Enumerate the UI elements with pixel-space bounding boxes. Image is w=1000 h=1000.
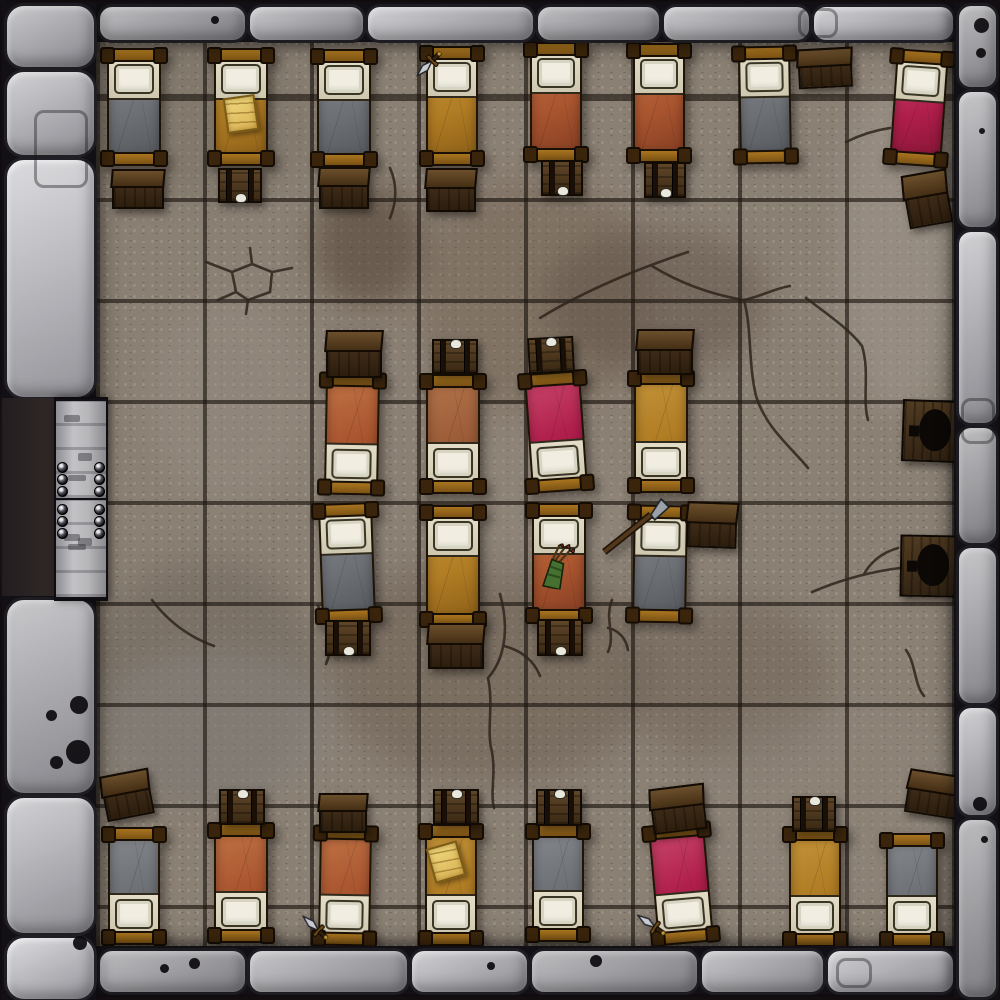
door-plank-mark	[78, 453, 92, 461]
bed-bot-8[interactable]	[883, 833, 941, 947]
chest-mb2[interactable]	[428, 623, 484, 669]
crate-lid	[424, 168, 478, 189]
bed-top-7[interactable]	[735, 46, 795, 165]
bed-sheet	[635, 53, 683, 95]
bed-top-1[interactable]	[104, 48, 164, 166]
bed-post	[363, 48, 378, 65]
bed-top-8[interactable]	[886, 48, 952, 168]
privy-2[interactable]	[899, 535, 956, 598]
chest-metal-band	[465, 791, 471, 823]
bed-post	[207, 150, 222, 167]
privy-hole	[918, 409, 952, 452]
stone-spot	[487, 962, 495, 970]
bed-post	[362, 930, 377, 947]
pillow	[331, 449, 372, 480]
bed-sheet	[791, 895, 839, 937]
bed-post	[678, 607, 693, 624]
stone-spot	[976, 48, 986, 58]
bed-blanket	[886, 841, 938, 939]
pillow	[893, 901, 931, 931]
chest-clasp	[451, 789, 463, 799]
door-panel[interactable]	[56, 401, 106, 498]
stone-carving-mark	[34, 110, 88, 188]
bed-blanket	[738, 54, 792, 157]
bed-post	[317, 478, 332, 495]
door-plank-mark	[68, 544, 86, 550]
bed-blanket	[317, 57, 371, 159]
bed-post	[782, 44, 797, 61]
chest-metal-band	[357, 622, 363, 654]
bed-post	[260, 927, 275, 944]
wall-stone	[4, 795, 97, 936]
wall-stone	[956, 817, 999, 1000]
bed-bot-5[interactable]	[529, 824, 587, 942]
bed-post	[731, 45, 746, 62]
bed-sheet	[216, 891, 266, 933]
chest-clasp	[450, 339, 462, 349]
stone-spot	[189, 958, 200, 969]
door-hinge-stud	[57, 504, 68, 515]
bed-post	[578, 502, 593, 519]
chest-metal-band	[569, 621, 575, 654]
bed-mid-bot-4[interactable]	[629, 504, 691, 623]
pillow	[432, 900, 470, 930]
bed-post	[472, 478, 487, 495]
bed-bot-7[interactable]	[786, 827, 844, 947]
bed-blanket	[530, 50, 582, 154]
chest-metal-band	[652, 164, 658, 196]
bed-post	[310, 48, 325, 65]
chest-clasp	[555, 646, 567, 656]
stone-carving-mark	[961, 398, 995, 444]
bed-post	[472, 373, 487, 390]
pillow	[901, 65, 941, 98]
bed-blanket	[318, 510, 376, 616]
wall-bottom	[96, 946, 954, 994]
bed-post	[470, 150, 485, 167]
pillow	[115, 899, 153, 929]
bed-post	[733, 148, 748, 165]
door-hinge-stud	[57, 528, 68, 539]
chest-metal-band	[568, 791, 574, 824]
chest-metal-band	[226, 170, 232, 201]
bed-top-3[interactable]	[314, 49, 374, 167]
chest-t3[interactable]	[319, 167, 369, 209]
bed-post	[419, 373, 434, 390]
bed-sheet	[428, 515, 478, 557]
bed-post	[677, 42, 692, 59]
pillow	[433, 521, 473, 551]
door-hinge-stud	[94, 486, 105, 497]
bed-top-5[interactable]	[527, 42, 585, 162]
wall-stone	[661, 4, 812, 43]
stone-carving-mark	[798, 8, 838, 38]
pillow	[325, 518, 366, 549]
privy-notch	[907, 561, 917, 572]
crate-lid	[317, 167, 371, 187]
bed-post	[152, 929, 167, 946]
crate-lid	[796, 47, 853, 69]
chest-t8[interactable]	[901, 169, 954, 230]
bed-post	[525, 502, 540, 519]
chest-clasp	[235, 193, 247, 203]
wall-stone	[365, 4, 536, 43]
bed-post	[370, 479, 385, 496]
wall-stone	[409, 948, 530, 995]
chest-metal-band	[549, 162, 555, 194]
bed-post	[153, 47, 168, 64]
bed-post	[419, 150, 434, 167]
bed-post	[152, 826, 167, 843]
bed-post	[889, 47, 905, 65]
chest-metal-band	[441, 791, 447, 823]
bed-post	[523, 146, 538, 163]
pillow	[745, 62, 784, 93]
wall-stone	[247, 4, 366, 43]
pillow	[536, 445, 580, 478]
bed-post	[419, 504, 434, 521]
bed-blanket	[890, 56, 949, 159]
door-hinge-stud	[94, 528, 105, 539]
bed-post	[525, 926, 540, 943]
stone-spot	[70, 696, 88, 714]
bed-sheet	[326, 443, 377, 486]
wall-stone	[956, 229, 999, 426]
chest-metal-band	[672, 164, 678, 196]
chest-mb4[interactable]	[686, 501, 738, 549]
bed-post	[207, 47, 222, 64]
bed-blanket	[214, 831, 268, 935]
bed-blanket	[633, 51, 685, 155]
bed-post	[472, 504, 487, 521]
bed-post	[574, 41, 589, 58]
pillow	[433, 448, 473, 478]
chest-b3[interactable]	[319, 793, 367, 833]
bed-sheet	[110, 893, 158, 935]
chest-clasp	[237, 789, 249, 799]
bed-bot-3[interactable]	[315, 826, 375, 947]
crate-lid	[110, 169, 166, 188]
bed-post	[625, 606, 640, 623]
bed-mid-top-1[interactable]	[321, 372, 383, 495]
chest-t7[interactable]	[797, 47, 853, 90]
bed-top-4[interactable]	[423, 46, 481, 166]
bed-post	[882, 148, 898, 166]
chest-b1[interactable]	[99, 768, 155, 822]
chest-t1[interactable]	[112, 169, 164, 209]
bed-post	[418, 823, 433, 840]
wall-right	[954, 2, 998, 998]
bed-post	[101, 826, 116, 843]
bed-post	[524, 477, 540, 495]
bed-post	[100, 47, 115, 64]
privy-hole	[916, 544, 949, 586]
stone-spot	[211, 16, 219, 24]
bed-post	[310, 151, 325, 168]
bed-blanket	[426, 513, 480, 619]
chest-t4[interactable]	[426, 168, 476, 212]
door-hinge-stud	[57, 474, 68, 485]
bed-post	[100, 150, 115, 167]
door-plank-mark	[64, 415, 80, 422]
chest-metal-band	[545, 621, 551, 654]
bed-post	[879, 832, 894, 849]
door-hinge-stud	[57, 516, 68, 527]
spear[interactable]	[598, 494, 675, 561]
pillow	[640, 59, 678, 89]
bed-blanket	[324, 381, 380, 488]
chest-metal-band	[227, 791, 233, 823]
chest-mt2[interactable]	[432, 339, 478, 374]
bed-post	[207, 927, 222, 944]
pillow	[221, 897, 261, 927]
bed-blanket	[634, 379, 688, 485]
privy-notch	[909, 426, 919, 437]
chest-b6[interactable]	[648, 783, 707, 835]
bed-sheet	[636, 441, 686, 483]
bed-sheet	[109, 58, 159, 100]
chest-metal-band	[440, 341, 446, 372]
crate-lid	[317, 793, 369, 812]
bed-post	[626, 147, 641, 164]
bed-mid-bot-3[interactable]	[529, 503, 589, 623]
wall-stone	[956, 89, 999, 230]
bed-post	[627, 477, 642, 494]
stone-carving-mark	[836, 958, 872, 988]
bed-post	[930, 832, 945, 849]
chest-metal-band	[569, 162, 575, 194]
door-hinge-stud	[94, 504, 105, 515]
bed-post	[579, 473, 595, 491]
bed-blanket	[108, 835, 160, 937]
door-hinge-stud	[94, 474, 105, 485]
bed-mid-top-4[interactable]	[631, 371, 691, 493]
stone-spot	[590, 955, 602, 967]
bed-post	[260, 150, 275, 167]
chest-clasp	[660, 188, 672, 198]
crate-lid	[324, 330, 384, 352]
chest-metal-band	[544, 791, 550, 824]
bed-post	[469, 823, 484, 840]
quiver[interactable]	[536, 541, 575, 594]
wall-stone	[4, 3, 97, 70]
bed-mid-top-3[interactable]	[521, 370, 591, 494]
bed-sheet	[740, 56, 789, 99]
bed-blanket	[789, 835, 841, 939]
door-hinge-stud	[94, 462, 105, 473]
bed-mid-top-2[interactable]	[423, 374, 483, 494]
chest-clasp	[545, 337, 558, 348]
double-door[interactable]	[54, 397, 108, 601]
chest-metal-band	[464, 341, 470, 372]
bed-post	[153, 150, 168, 167]
door-plank-mark	[68, 475, 86, 481]
pillow	[539, 896, 577, 926]
wall-stone	[535, 4, 662, 43]
crate-lid	[685, 501, 740, 524]
wall-stone	[247, 948, 410, 995]
wall-stone	[4, 157, 97, 400]
bed-post	[933, 151, 949, 169]
stone-spot	[981, 836, 988, 843]
bed-sheet	[427, 894, 475, 936]
chest-metal-band	[800, 798, 806, 830]
wall-stone	[529, 948, 700, 995]
stone-spot	[50, 756, 63, 769]
bed-post	[523, 41, 538, 58]
bed-sheet	[320, 512, 371, 556]
bed-post	[626, 42, 641, 59]
bed-post	[517, 373, 533, 391]
chest-clasp	[809, 796, 821, 806]
chest-t6[interactable]	[644, 162, 686, 198]
chest-metal-band	[333, 622, 339, 654]
bed-sheet	[319, 59, 369, 101]
bed-bot-4[interactable]	[422, 824, 480, 946]
bed-post	[680, 477, 695, 494]
chest-t2[interactable]	[218, 168, 262, 203]
chest-mt4[interactable]	[637, 329, 693, 375]
crate-lid	[635, 329, 695, 351]
chest-metal-band	[559, 338, 567, 370]
door-hinge-stud	[57, 486, 68, 497]
wall-stone	[97, 4, 248, 43]
chest-metal-band	[251, 791, 257, 823]
chest-b4[interactable]	[433, 789, 479, 825]
bed-post	[470, 45, 485, 62]
bed-top-6[interactable]	[630, 43, 688, 163]
bed-mid-bot-1[interactable]	[315, 502, 379, 624]
bed-blanket	[107, 56, 161, 158]
parchment[interactable]	[223, 94, 260, 134]
pillow	[641, 447, 681, 477]
chest-mt3[interactable]	[527, 336, 575, 374]
bed-bot-1[interactable]	[105, 827, 163, 945]
bed-post	[311, 503, 327, 521]
pillow	[114, 64, 154, 94]
bed-blanket	[426, 382, 480, 486]
door-panel[interactable]	[56, 500, 106, 597]
battle-map	[0, 0, 1000, 1000]
pillow	[324, 65, 364, 95]
bed-post	[101, 929, 116, 946]
bed-post	[363, 151, 378, 168]
bed-post	[705, 925, 721, 943]
bed-post	[364, 501, 380, 519]
wall-stone	[97, 948, 248, 995]
bed-bot-2[interactable]	[211, 823, 271, 943]
bed-sheet	[216, 58, 266, 100]
pillow	[221, 64, 261, 94]
chest-mb1[interactable]	[325, 620, 371, 656]
chest-mt1[interactable]	[326, 330, 382, 378]
bed-post	[784, 147, 799, 164]
stone-spot	[73, 936, 87, 950]
bed-post	[576, 926, 591, 943]
bed-blanket	[532, 832, 584, 934]
bed-sheet	[428, 442, 478, 484]
bed-top-2[interactable]	[211, 48, 271, 166]
stone-spot	[160, 964, 169, 973]
pillow	[537, 58, 575, 88]
door-hinge-stud	[94, 516, 105, 527]
stone-spot	[46, 710, 57, 721]
chest-metal-band	[535, 339, 543, 371]
wall-stone	[699, 948, 826, 995]
chest-clasp	[343, 646, 355, 656]
stone-spot	[979, 128, 985, 134]
chest-t5[interactable]	[541, 160, 583, 196]
stone-spot	[974, 18, 989, 33]
wall-left-top	[2, 2, 96, 398]
chest-clasp	[554, 789, 566, 799]
pillow	[796, 901, 834, 931]
wall-stone	[956, 3, 999, 90]
chest-metal-band	[248, 170, 254, 201]
bed-blanket	[524, 378, 587, 486]
chest-b7[interactable]	[792, 796, 836, 832]
bed-post	[469, 930, 484, 947]
bed-sheet	[532, 52, 580, 94]
bed-post	[419, 478, 434, 495]
chest-clasp	[557, 186, 569, 196]
crate-lid	[426, 623, 486, 645]
bed-sheet	[888, 895, 936, 937]
stone-spot	[973, 797, 987, 811]
stone-spot	[66, 740, 90, 764]
chest-b5[interactable]	[536, 789, 582, 826]
chest-metal-band	[822, 798, 828, 830]
chest-mb3[interactable]	[537, 619, 583, 656]
door-hinge-stud	[57, 462, 68, 473]
bed-post	[260, 47, 275, 64]
parchment-sheet	[223, 94, 260, 134]
privy-1[interactable]	[901, 399, 959, 463]
wall-stone	[956, 545, 999, 706]
bed-post	[418, 930, 433, 947]
chest-b2[interactable]	[219, 789, 265, 825]
bed-sheet	[534, 890, 582, 932]
bed-mid-bot-2[interactable]	[423, 505, 483, 627]
bed-bot-6[interactable]	[645, 822, 717, 947]
